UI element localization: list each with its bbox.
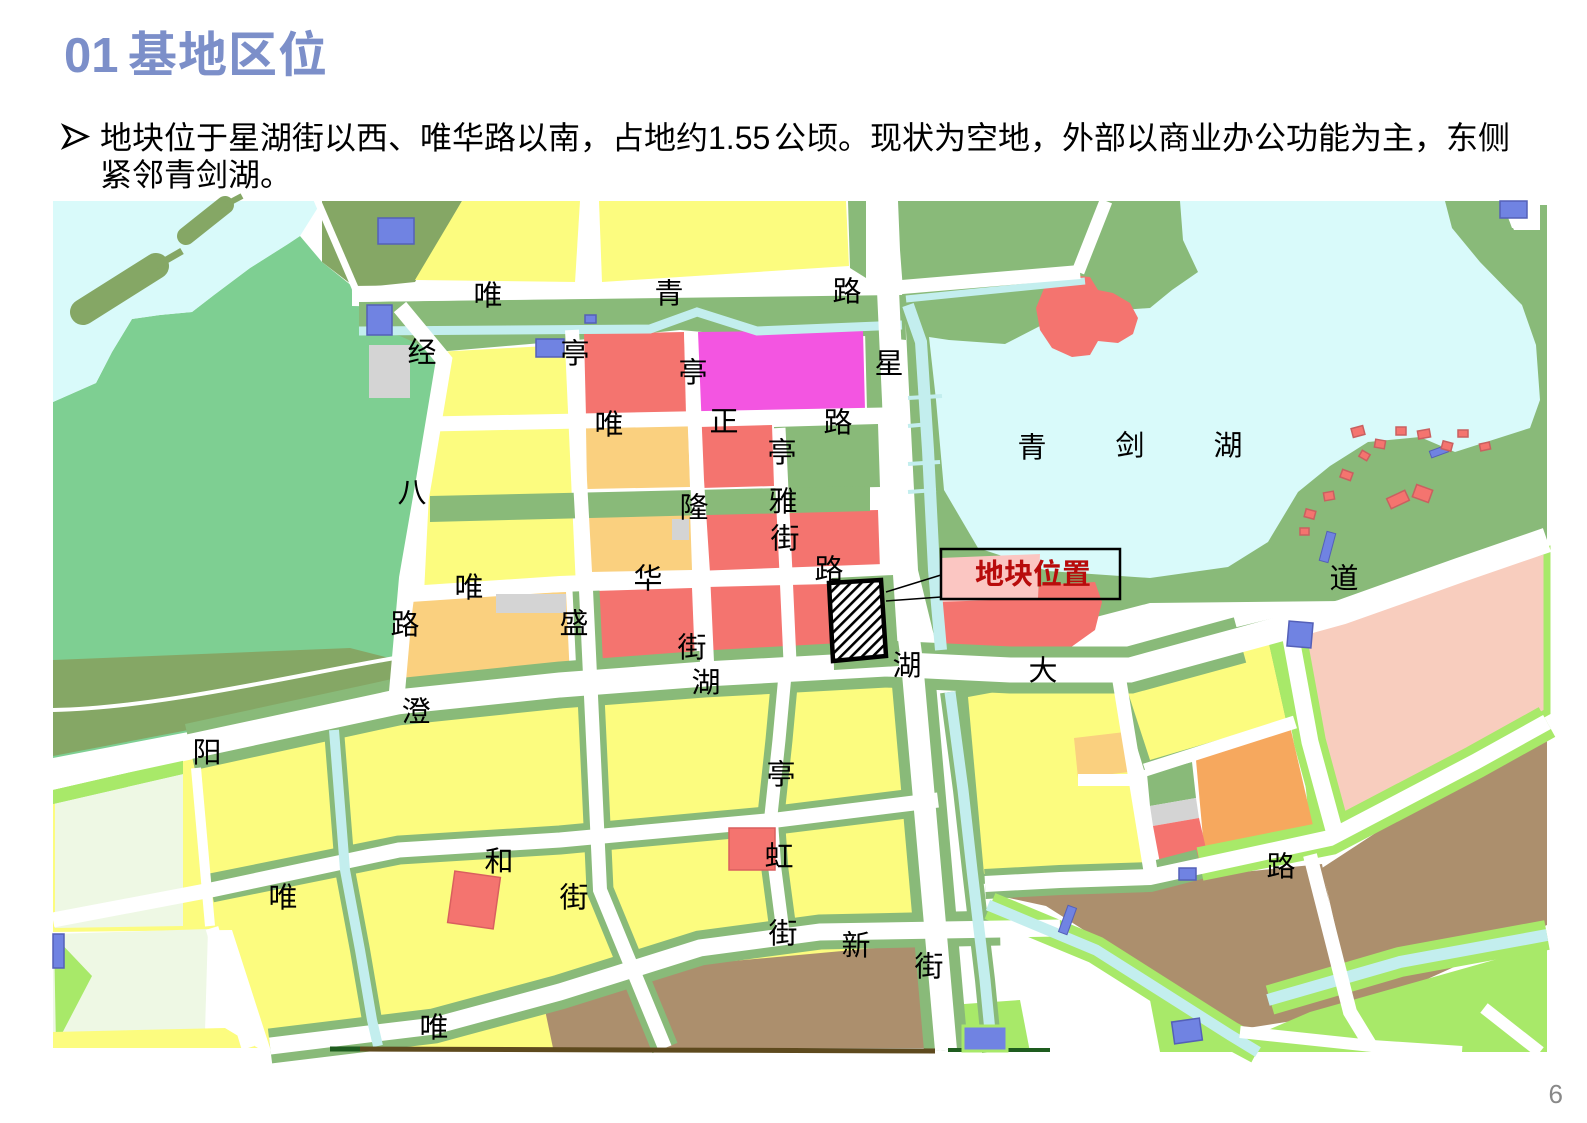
- svg-text:1.55: 1.55: [708, 120, 770, 156]
- svg-text:01: 01: [64, 29, 119, 83]
- svg-text:6: 6: [1549, 1079, 1563, 1109]
